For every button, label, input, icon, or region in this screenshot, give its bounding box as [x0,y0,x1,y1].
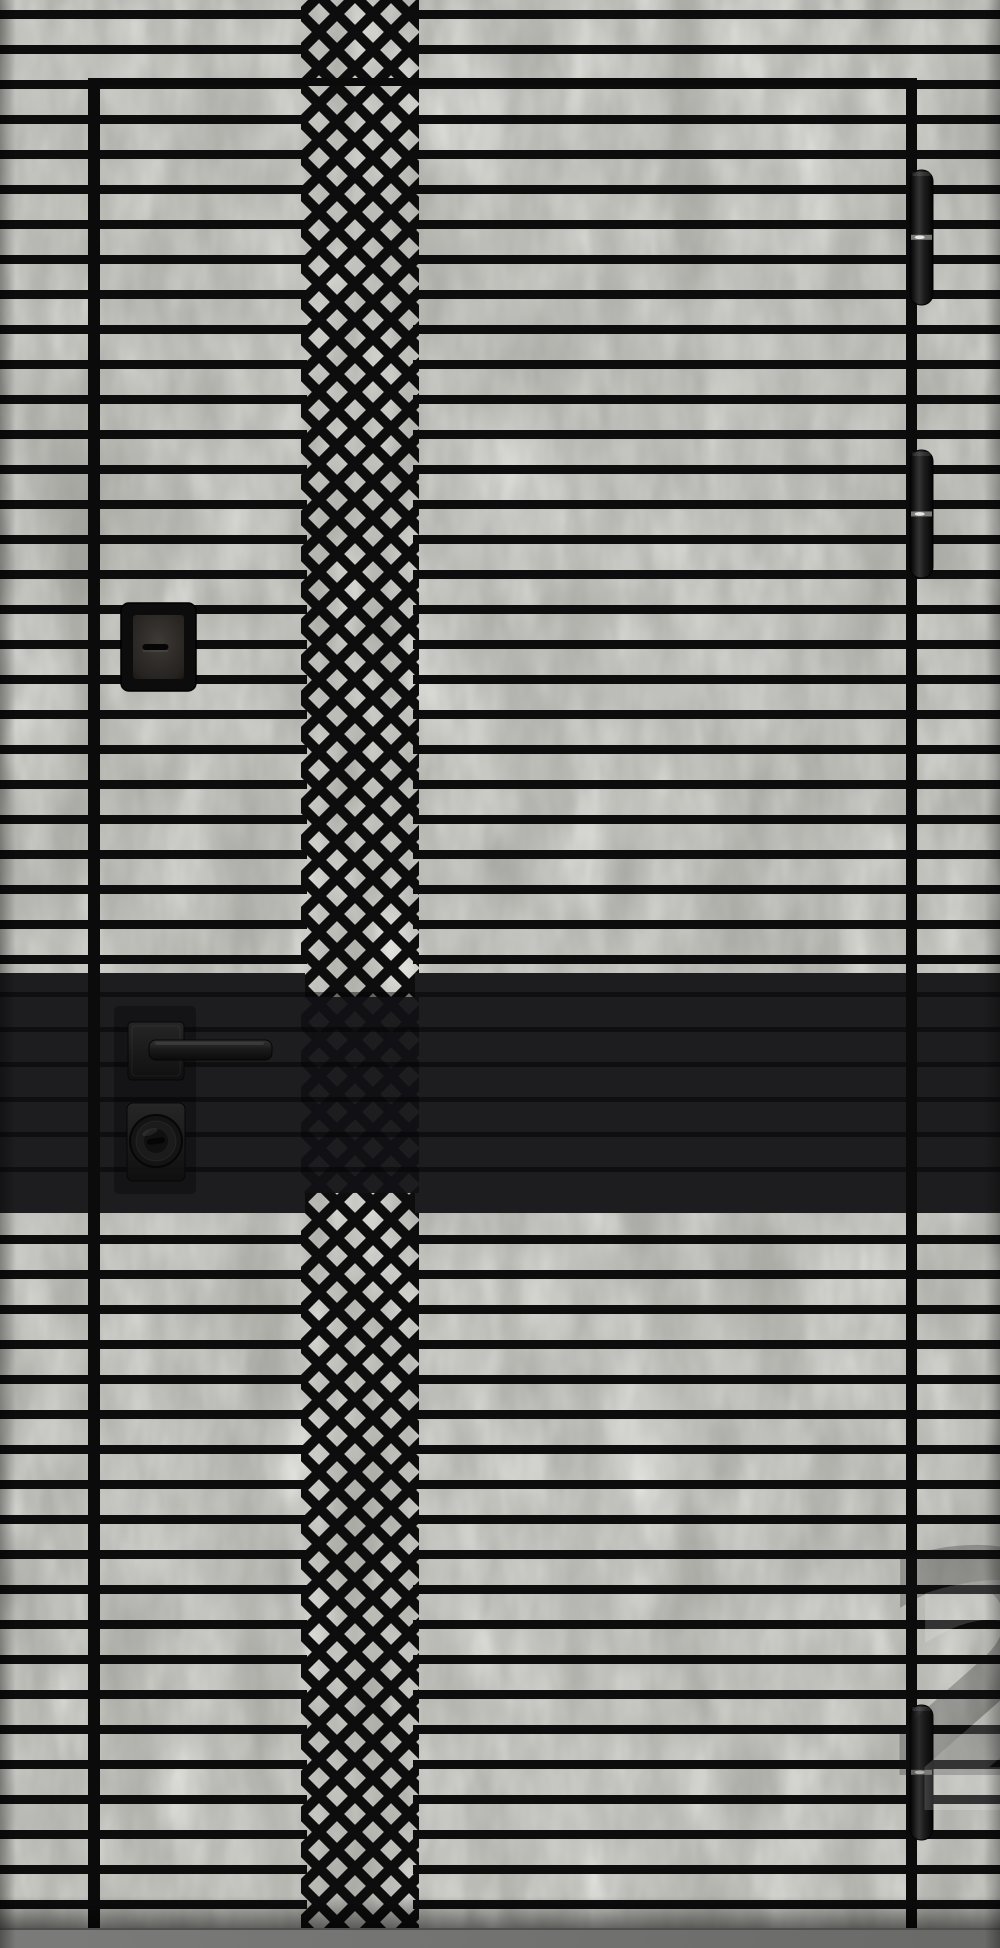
groove-line-left [0,710,307,719]
groove-line-left [0,115,307,124]
groove-line-left [0,1690,307,1699]
right-edge-shading [984,0,1000,1948]
groove-line-left [0,220,307,229]
groove-line-left [0,395,307,404]
watermark: 2 2 [875,1488,1000,1884]
groove-line-right [413,10,1000,19]
door-product-photo: 2 2 [0,0,1000,1948]
groove-line-left [0,535,307,544]
floor-strip [0,1928,1000,1948]
groove-line-left [0,1725,307,1734]
cylinder-lock [127,1103,185,1181]
groove-line-left [0,1550,307,1559]
left-edge-shading [0,0,16,1948]
groove-line-left [0,360,307,369]
key-escutcheon [121,603,196,691]
groove-line-left [0,45,307,54]
groove-line-left [0,500,307,509]
groove-line-left [0,325,307,334]
groove-line-left [0,1795,307,1804]
groove-line-left [0,150,307,159]
groove-line-left [0,570,307,579]
groove-line-left [0,1375,307,1384]
groove-line-right [413,45,1000,54]
floor-and-shadow [0,1896,1000,1948]
groove-line-left [0,1515,307,1524]
groove-line-left [0,1305,307,1314]
frame-groove-left [88,78,100,1928]
groove-line-left [0,465,307,474]
floor-edge-line [0,1928,1000,1930]
groove-line-left [0,1340,307,1349]
hinge-top-top-cap [912,172,931,176]
groove-line-left [0,955,307,964]
groove-line-left [0,10,307,19]
groove-line-left [0,1410,307,1419]
groove-line-left [0,1760,307,1769]
door-photo-canvas: 2 2 [0,0,1000,1948]
groove-stripes [0,10,1000,1909]
groove-line-left [0,430,307,439]
groove-line-left [0,1270,307,1279]
groove-line-left [0,745,307,754]
band-seam [0,992,1000,997]
groove-line-left [0,780,307,789]
handle-lever-highlight [155,1042,264,1045]
groove-line-left [0,255,307,264]
groove-line-left [0,885,307,894]
groove-line-left [0,1620,307,1629]
groove-line-left [0,1585,307,1594]
groove-line-left [0,1830,307,1839]
groove-line-left [0,1480,307,1489]
keyhole-slot-highlight [143,650,169,652]
groove-line-left [0,1235,307,1244]
groove-line-left [0,185,307,194]
keyhole-slot [143,644,169,650]
frame-groove-top [88,78,917,86]
groove-line-left [0,850,307,859]
door-bottom-shadow [0,1896,1000,1928]
groove-line-left [0,1655,307,1664]
groove-line-left [0,815,307,824]
groove-line-left [0,1445,307,1454]
groove-line-left [0,920,307,929]
groove-line-left [0,1865,307,1874]
hinge-middle-ring-glint [915,512,925,516]
hinge-top-ring-glint [915,236,925,240]
hinge-middle-top-cap [912,452,931,456]
groove-line-left [0,290,307,299]
